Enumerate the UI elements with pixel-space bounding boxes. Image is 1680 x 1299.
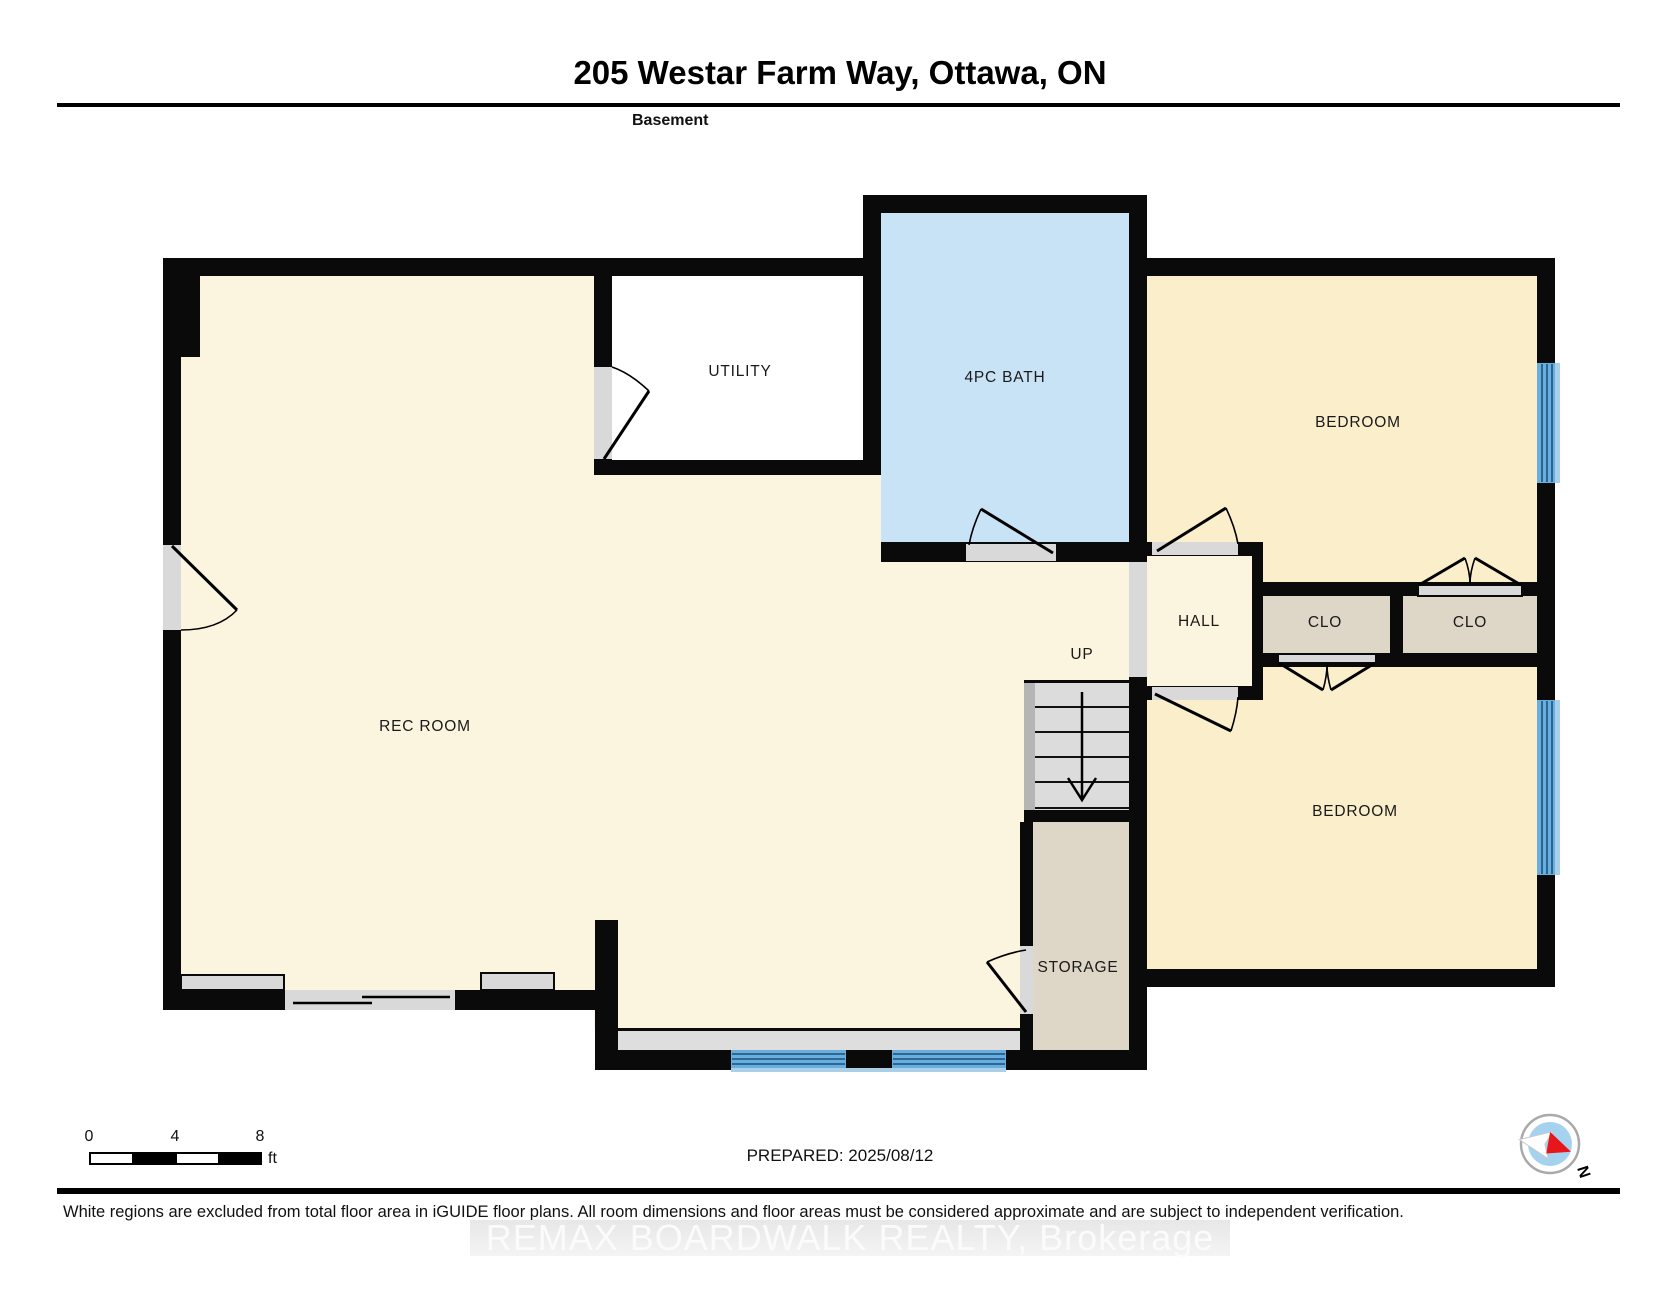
scale-tick-8: 8	[256, 1128, 265, 1146]
prepared-date: PREPARED: 2025/08/12	[0, 1146, 1680, 1166]
room-label-bedroom-2: BEDROOM	[1312, 803, 1398, 821]
room-label-storage: STORAGE	[1037, 959, 1118, 977]
stairs-up-label: UP	[1070, 646, 1093, 664]
floor-plan-page: 205 Westar Farm Way, Ottawa, ON Basement	[0, 0, 1680, 1299]
room-label-rec-room: REC ROOM	[379, 718, 471, 736]
room-label-closet-1: CLO	[1308, 614, 1342, 632]
floor-plan: REC ROOM UTILITY 4PC BATH BEDROOM HALL C…	[0, 0, 1680, 1299]
compass-north-label: N	[1573, 1164, 1593, 1180]
footer-divider	[57, 1188, 1620, 1194]
plan-linework	[0, 0, 1680, 1299]
room-label-closet-2: CLO	[1453, 614, 1487, 632]
room-label-utility: UTILITY	[708, 363, 771, 381]
scale-tick-4: 4	[171, 1128, 180, 1146]
scale-tick-0: 0	[85, 1128, 94, 1146]
brokerage-watermark: REMAX BOARDWALK REALTY, Brokerage	[470, 1220, 1230, 1256]
stair-arrow	[1068, 692, 1096, 800]
compass-icon: N	[1505, 1102, 1601, 1198]
room-label-bath: 4PC BATH	[964, 369, 1045, 387]
room-label-hall: HALL	[1178, 613, 1220, 631]
room-label-bedroom-1: BEDROOM	[1315, 414, 1401, 432]
